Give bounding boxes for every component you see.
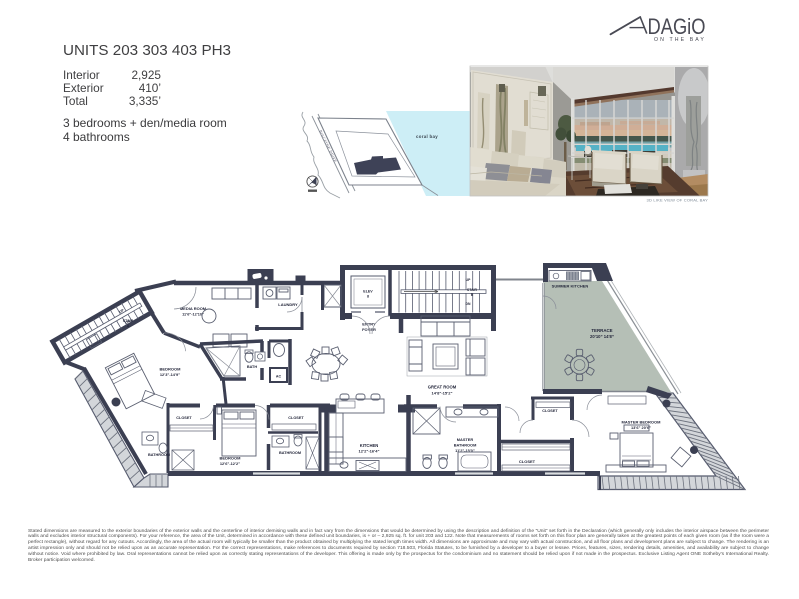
svg-text:AC: AC	[276, 375, 282, 379]
svg-text:BATH: BATH	[247, 365, 258, 369]
svg-text:BATHROOM: BATHROOM	[454, 443, 477, 448]
svg-text:BATHROOM: BATHROOM	[148, 453, 170, 457]
svg-text:ELEV: ELEV	[363, 290, 373, 294]
svg-text:CLOSET: CLOSET	[288, 416, 304, 420]
svg-text:BEDROOM: BEDROOM	[160, 367, 182, 372]
svg-text:12’6”-12’2”: 12’6”-12’2”	[220, 461, 240, 466]
svg-text:3D LIKE VIEW OF CORAL BAY: 3D LIKE VIEW OF CORAL BAY	[647, 198, 709, 203]
svg-text:GREAT ROOM: GREAT ROOM	[428, 385, 457, 390]
svg-text:MASTER BEDROOM: MASTER BEDROOM	[622, 420, 662, 425]
svg-text:SUMMER KITCHEN: SUMMER KITCHEN	[552, 284, 589, 289]
svg-text:STAIR: STAIR	[467, 288, 477, 292]
svg-text:CLOSET: CLOSET	[542, 409, 558, 413]
svg-text:CLOSET: CLOSET	[176, 416, 192, 420]
svg-text:ON THE BAY: ON THE BAY	[654, 37, 706, 43]
svg-text:UP: UP	[466, 278, 471, 282]
svg-text:BATHROOM: BATHROOM	[279, 451, 301, 455]
svg-text:KITCHEN: KITCHEN	[360, 443, 379, 448]
svg-text:coral bay: coral bay	[416, 134, 438, 139]
svg-text:CLOSET: CLOSET	[519, 459, 536, 464]
svg-text:20’10” 14’8”: 20’10” 14’8”	[590, 334, 614, 339]
svg-text:12’3”-14’9”: 12’3”-14’9”	[160, 372, 180, 377]
svg-text:12’2”-16’4”: 12’2”-16’4”	[359, 449, 380, 454]
svg-text:TERRACE: TERRACE	[591, 328, 612, 333]
svg-text:13’6” 20’6”: 13’6” 20’6”	[631, 425, 651, 430]
svg-text:DAGiO: DAGiO	[648, 14, 706, 39]
svg-text:MASTER: MASTER	[457, 437, 474, 442]
svg-text:14’8”-15’2”: 14’8”-15’2”	[432, 391, 453, 396]
svg-text:DN: DN	[466, 302, 471, 306]
svg-text:STAIR: STAIR	[123, 319, 134, 323]
svg-text:8: 8	[367, 295, 369, 299]
svg-text:A: A	[127, 324, 130, 328]
svg-text:11’6”-12’10”: 11’6”-12’10”	[182, 313, 204, 317]
svg-text:LAUNDRY: LAUNDRY	[278, 302, 298, 307]
